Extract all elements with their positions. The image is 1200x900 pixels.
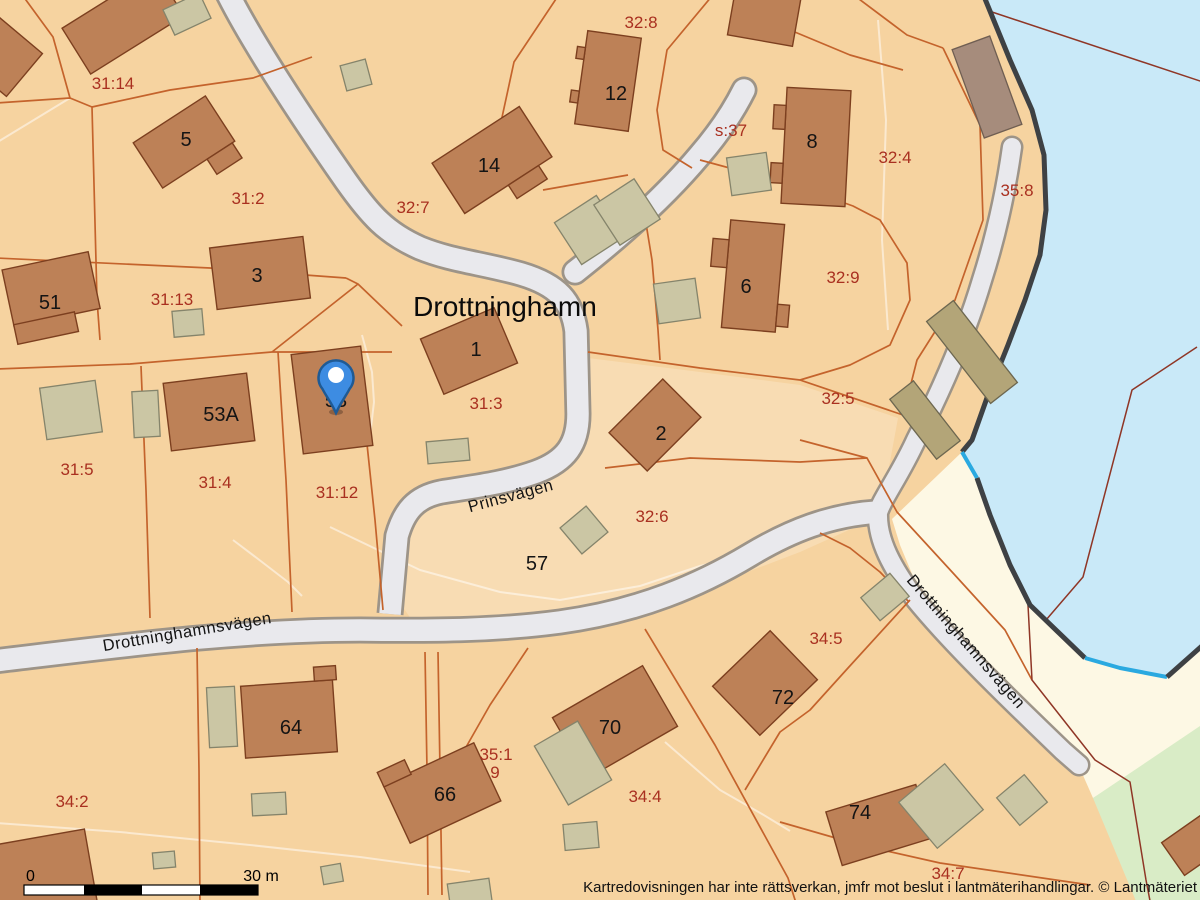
building-label: 14 — [478, 155, 500, 177]
building-label: 8 — [806, 131, 817, 153]
parcel-label: 32:5 — [821, 389, 854, 408]
building-label: 57 — [526, 553, 548, 575]
parcel-label: 32:4 — [878, 148, 911, 167]
outbuilding — [172, 309, 204, 338]
outbuilding — [152, 851, 175, 869]
parcel-label: 32:9 — [826, 268, 859, 287]
building-label: 3 — [251, 265, 262, 287]
building-label: 1 — [470, 339, 481, 361]
parcel-label: s:37 — [715, 121, 747, 140]
outbuilding — [132, 390, 160, 437]
parcel-label: 31:13 — [151, 290, 194, 309]
outbuilding — [206, 686, 237, 747]
parcel-label: 31:3 — [469, 394, 502, 413]
parcel-label: 34:2 — [55, 792, 88, 811]
outbuilding — [653, 278, 700, 323]
pin-center-dot — [328, 367, 344, 383]
parcel-label: 9 — [490, 763, 499, 782]
building-label: 72 — [772, 687, 794, 709]
parcel-label: 31:12 — [316, 483, 359, 502]
building-label: 6 — [740, 276, 751, 298]
outbuilding — [340, 59, 372, 91]
building-label: 5 — [180, 129, 191, 151]
scale-bar-segment — [200, 885, 258, 895]
building-label: 66 — [434, 784, 456, 806]
building-label: 74 — [849, 802, 871, 824]
scale-bar-segment — [84, 885, 142, 895]
parcel-label: 31:14 — [92, 74, 135, 93]
parcel-label: 32:6 — [635, 507, 668, 526]
cadastral-map: 31:14 32:8 31:2 32:7 s:37 32:4 35:8 32:9… — [0, 0, 1200, 900]
parcel-label: 31:4 — [198, 473, 231, 492]
building-label: 70 — [599, 717, 621, 739]
parcel-label: 31:5 — [60, 460, 93, 479]
outbuilding — [251, 792, 286, 816]
parcel-label: 32:8 — [624, 13, 657, 32]
building-label: 51 — [39, 292, 61, 314]
parcel-label: 34:5 — [809, 629, 842, 648]
scale-bar-start-label: 0 — [26, 868, 35, 885]
place-name-label: Drottninghamn — [413, 291, 597, 322]
parcel-label: 35:8 — [1000, 181, 1033, 200]
building-label: 64 — [280, 717, 302, 739]
outbuilding — [727, 152, 772, 195]
parcel-label: 32:7 — [396, 198, 429, 217]
outbuilding — [563, 822, 599, 851]
map-viewport[interactable]: 31:14 32:8 31:2 32:7 s:37 32:4 35:8 32:9… — [0, 0, 1200, 900]
parcel-label: 31:2 — [231, 189, 264, 208]
parcel-label: 34:4 — [628, 787, 661, 806]
outbuilding — [321, 863, 344, 884]
building-label: 53A — [203, 404, 239, 426]
outbuilding — [40, 380, 103, 439]
scale-bar-end-label: 30 m — [243, 868, 279, 885]
building-label: 2 — [655, 423, 666, 445]
attribution-text: Kartredovisningen har inte rättsverkan, … — [583, 879, 1198, 896]
parcel-label: 35:1 — [479, 745, 512, 764]
building-label: 12 — [605, 83, 627, 105]
outbuilding — [426, 438, 470, 464]
